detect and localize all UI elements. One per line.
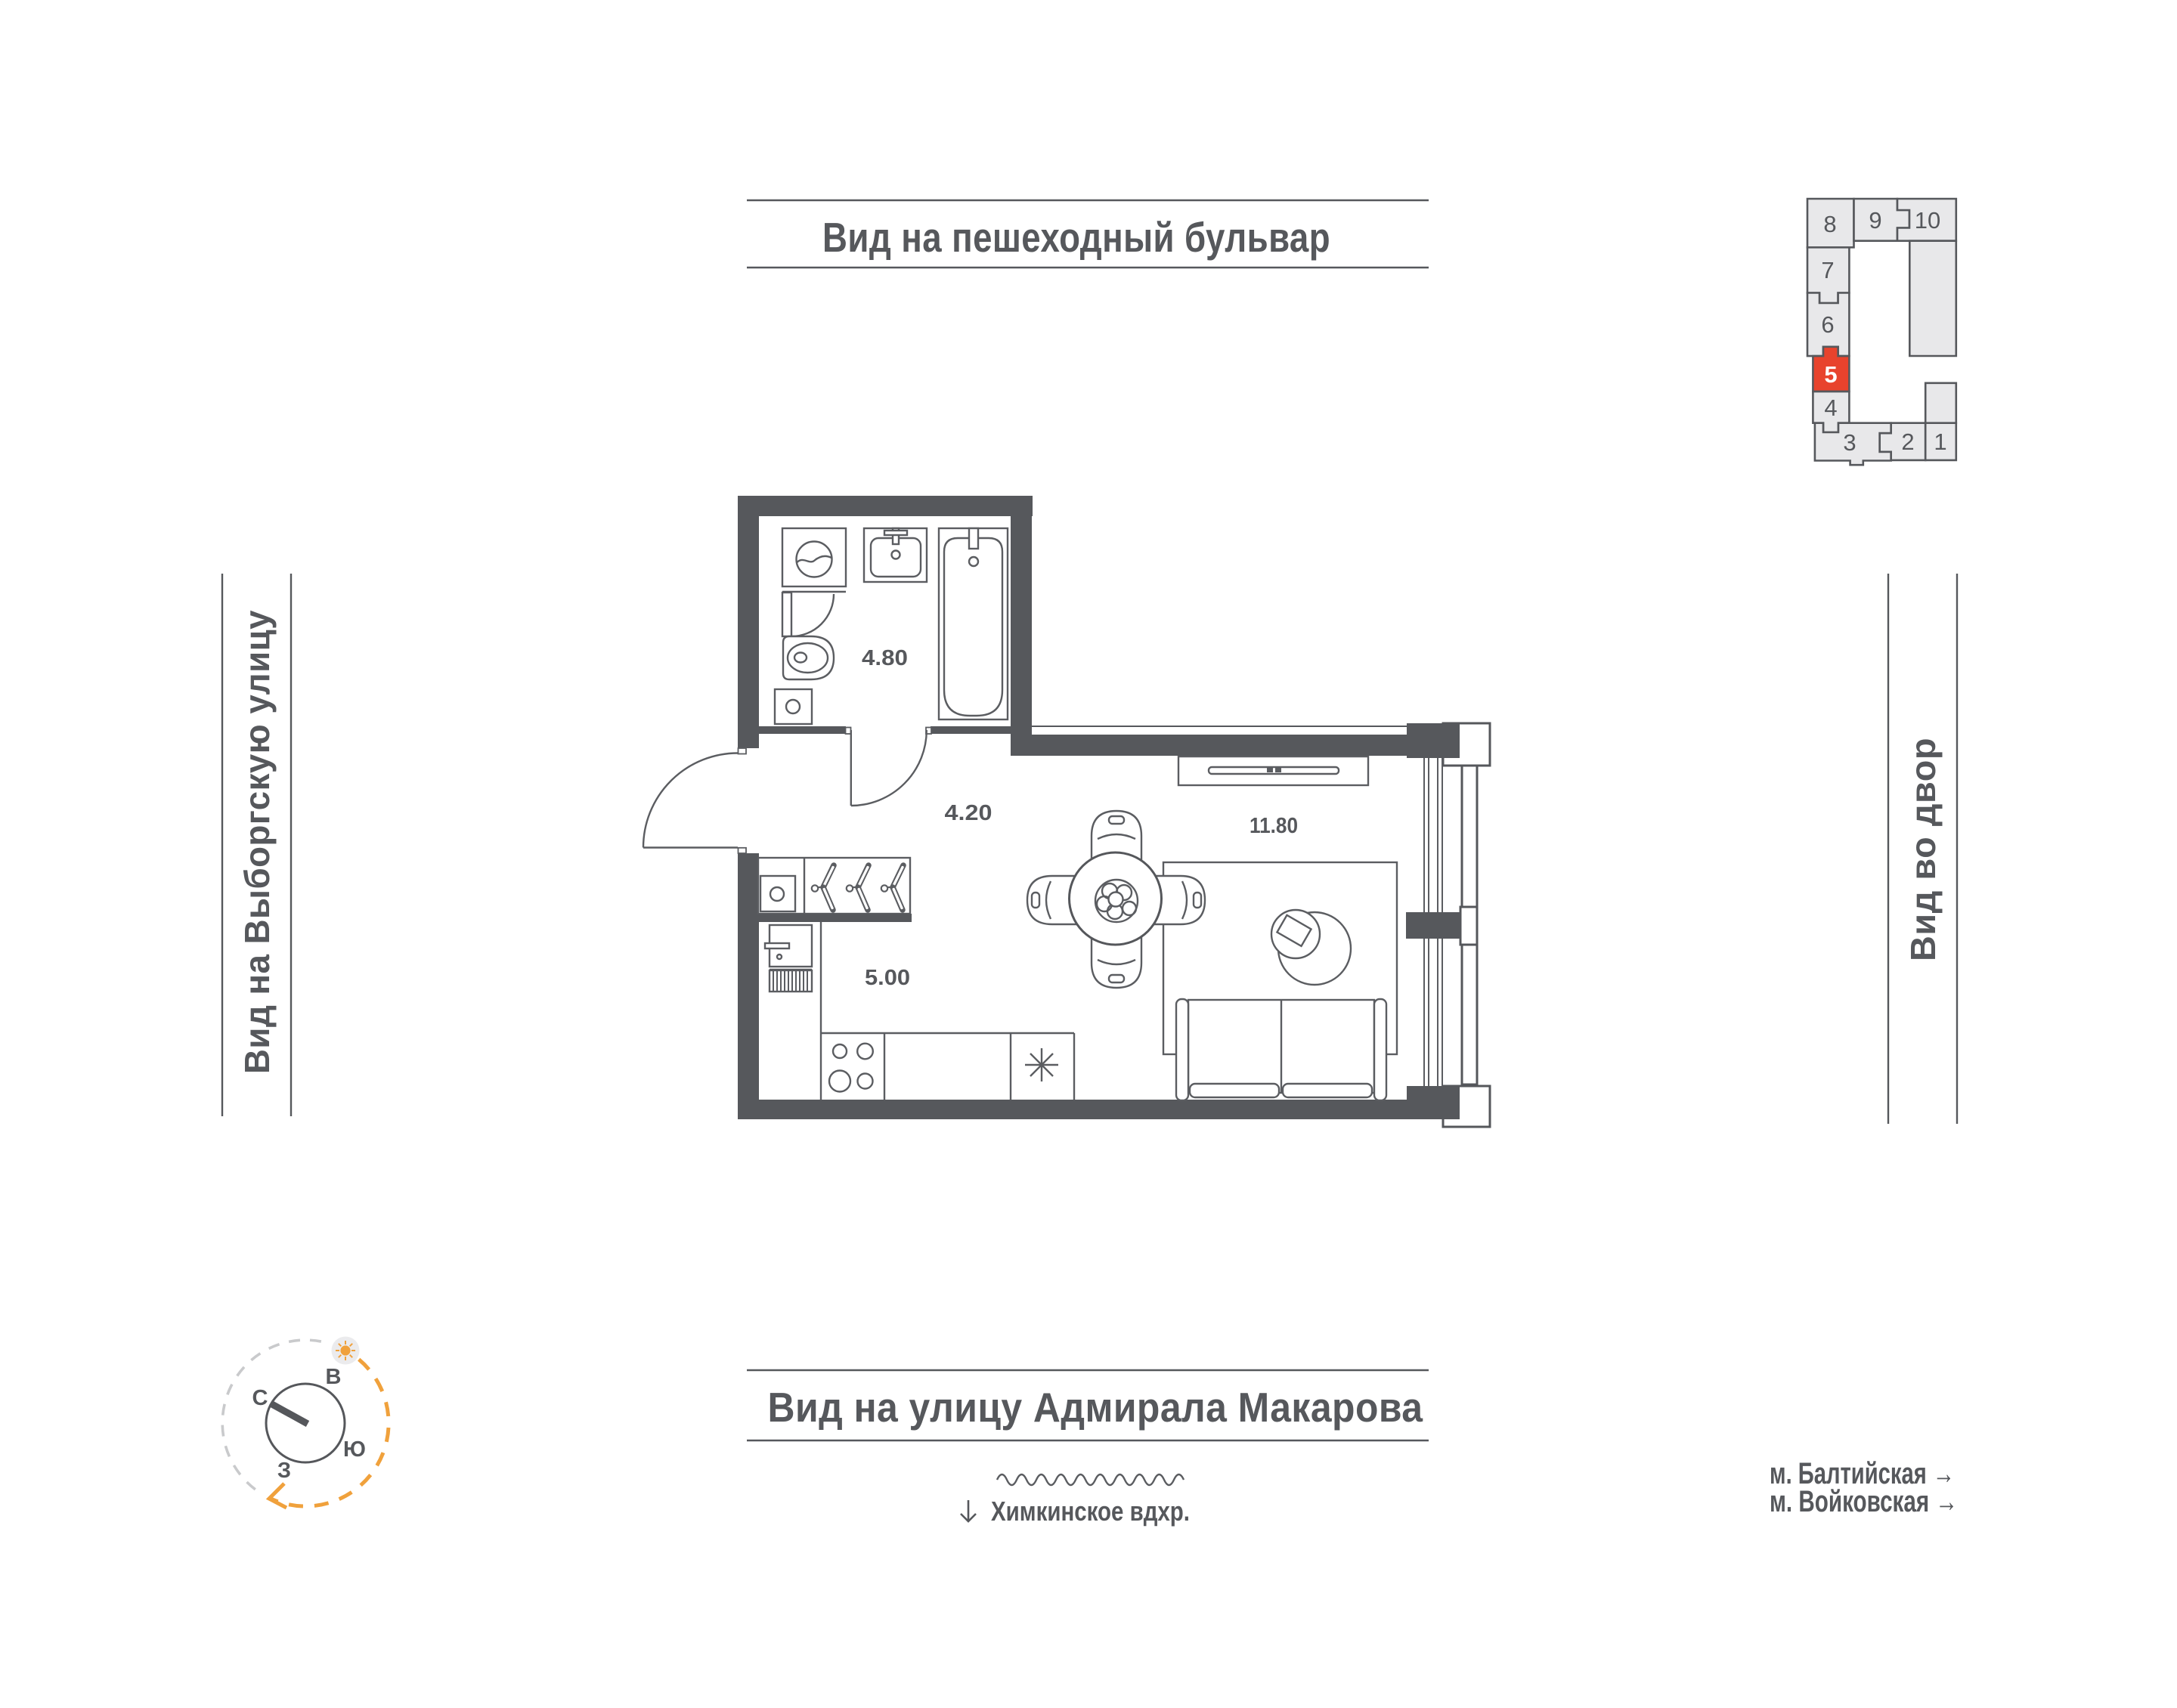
svg-text:5.00: 5.00 — [865, 966, 910, 990]
svg-text:5: 5 — [1824, 361, 1837, 388]
svg-text:Химкинское вдхр.: Химкинское вдхр. — [991, 1496, 1190, 1527]
svg-text:Вид на улицу Адмирала Макарова: Вид на улицу Адмирала Макарова — [768, 1384, 1423, 1431]
svg-text:Вид на пешеходный бульвар: Вид на пешеходный бульвар — [822, 214, 1330, 261]
svg-text:2: 2 — [1901, 429, 1914, 455]
svg-text:1: 1 — [1934, 429, 1946, 455]
svg-text:Вид во двор: Вид во двор — [1903, 738, 1943, 961]
svg-text:Ю: Ю — [343, 1437, 366, 1462]
svg-text:З: З — [277, 1459, 291, 1483]
svg-text:10: 10 — [1915, 207, 1940, 234]
svg-text:3: 3 — [1843, 429, 1856, 456]
svg-text:В: В — [326, 1365, 342, 1389]
svg-text:7: 7 — [1821, 257, 1834, 283]
svg-text:6: 6 — [1821, 311, 1834, 338]
svg-text:м. Войковская →: м. Войковская → — [1770, 1485, 1958, 1518]
svg-text:4.20: 4.20 — [945, 801, 993, 825]
svg-text:4: 4 — [1824, 395, 1837, 421]
svg-text:11.80: 11.80 — [1250, 814, 1298, 838]
svg-text:9: 9 — [1869, 207, 1881, 234]
svg-text:Вид на Выборгскую улицу: Вид на Выборгскую улицу — [237, 610, 277, 1074]
svg-text:8: 8 — [1823, 211, 1836, 237]
svg-text:4.80: 4.80 — [862, 646, 908, 670]
svg-text:С: С — [252, 1386, 268, 1410]
